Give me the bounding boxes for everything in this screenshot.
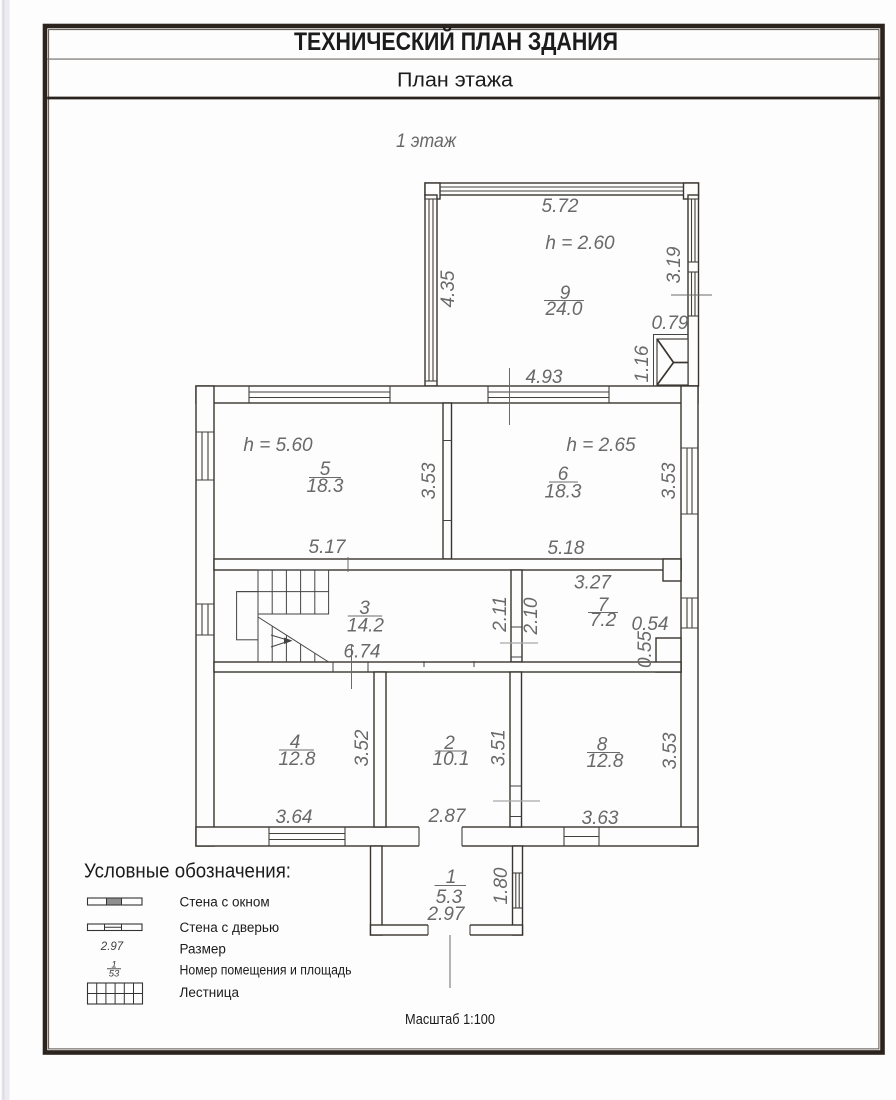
svg-text:2.97: 2.97 bbox=[427, 904, 466, 925]
svg-text:3.53: 3.53 bbox=[660, 732, 681, 769]
svg-text:3.53: 3.53 bbox=[659, 462, 680, 499]
svg-text:h = 2.60: h = 2.60 bbox=[545, 233, 615, 254]
svg-text:53: 53 bbox=[109, 968, 120, 979]
svg-text:3.63: 3.63 bbox=[582, 808, 619, 829]
svg-text:5.18: 5.18 bbox=[548, 538, 585, 559]
svg-text:1.16: 1.16 bbox=[632, 345, 653, 382]
svg-text:12.8: 12.8 bbox=[279, 749, 316, 770]
svg-text:Условные обозначения:: Условные обозначения: bbox=[84, 860, 291, 883]
svg-text:12.8: 12.8 bbox=[587, 751, 624, 772]
svg-text:18.3: 18.3 bbox=[545, 482, 582, 503]
svg-text:Стена с окном: Стена с окном bbox=[180, 895, 270, 910]
svg-text:6.74: 6.74 bbox=[344, 642, 381, 663]
svg-text:Номер помещения и площадь: Номер помещения и площадь bbox=[180, 963, 352, 978]
svg-text:1.80: 1.80 bbox=[491, 867, 512, 904]
svg-text:2.10: 2.10 bbox=[521, 597, 542, 635]
svg-text:18.3: 18.3 bbox=[307, 476, 344, 497]
svg-text:4.93: 4.93 bbox=[526, 367, 563, 388]
svg-text:5.17: 5.17 bbox=[309, 537, 347, 558]
svg-text:Размер: Размер bbox=[180, 942, 226, 957]
svg-text:0.55: 0.55 bbox=[635, 631, 656, 668]
svg-text:3.19: 3.19 bbox=[664, 246, 685, 283]
svg-text:2.97: 2.97 bbox=[100, 941, 124, 953]
svg-text:План этажа: План этажа bbox=[397, 70, 514, 92]
svg-text:2.87: 2.87 bbox=[428, 806, 467, 827]
svg-text:14.2: 14.2 bbox=[347, 616, 384, 637]
svg-text:ТЕХНИЧЕСКИЙ ПЛАН ЗДАНИЯ: ТЕХНИЧЕСКИЙ ПЛАН ЗДАНИЯ bbox=[294, 26, 618, 56]
svg-text:1 этаж: 1 этаж bbox=[396, 131, 457, 152]
svg-text:24.0: 24.0 bbox=[545, 299, 583, 320]
svg-text:2.11: 2.11 bbox=[490, 596, 511, 633]
svg-text:3.51: 3.51 bbox=[489, 729, 510, 766]
svg-text:3.64: 3.64 bbox=[276, 807, 313, 828]
svg-text:1: 1 bbox=[446, 867, 457, 888]
svg-text:3.52: 3.52 bbox=[352, 729, 373, 766]
svg-text:7.2: 7.2 bbox=[590, 610, 617, 631]
svg-text:h = 2.65: h = 2.65 bbox=[566, 435, 636, 456]
svg-text:h = 5.60: h = 5.60 bbox=[243, 435, 313, 456]
svg-text:Лестница: Лестница bbox=[180, 985, 240, 1000]
svg-text:Масштаб 1:100: Масштаб 1:100 bbox=[405, 1012, 495, 1028]
svg-text:Стена с дверью: Стена с дверью bbox=[180, 920, 280, 935]
svg-text:3.27: 3.27 bbox=[574, 573, 612, 594]
svg-text:3.53: 3.53 bbox=[419, 462, 440, 499]
svg-text:10.1: 10.1 bbox=[433, 749, 470, 770]
svg-text:5.72: 5.72 bbox=[542, 196, 579, 217]
svg-text:4.35: 4.35 bbox=[438, 270, 459, 307]
svg-text:0.79: 0.79 bbox=[652, 313, 689, 334]
